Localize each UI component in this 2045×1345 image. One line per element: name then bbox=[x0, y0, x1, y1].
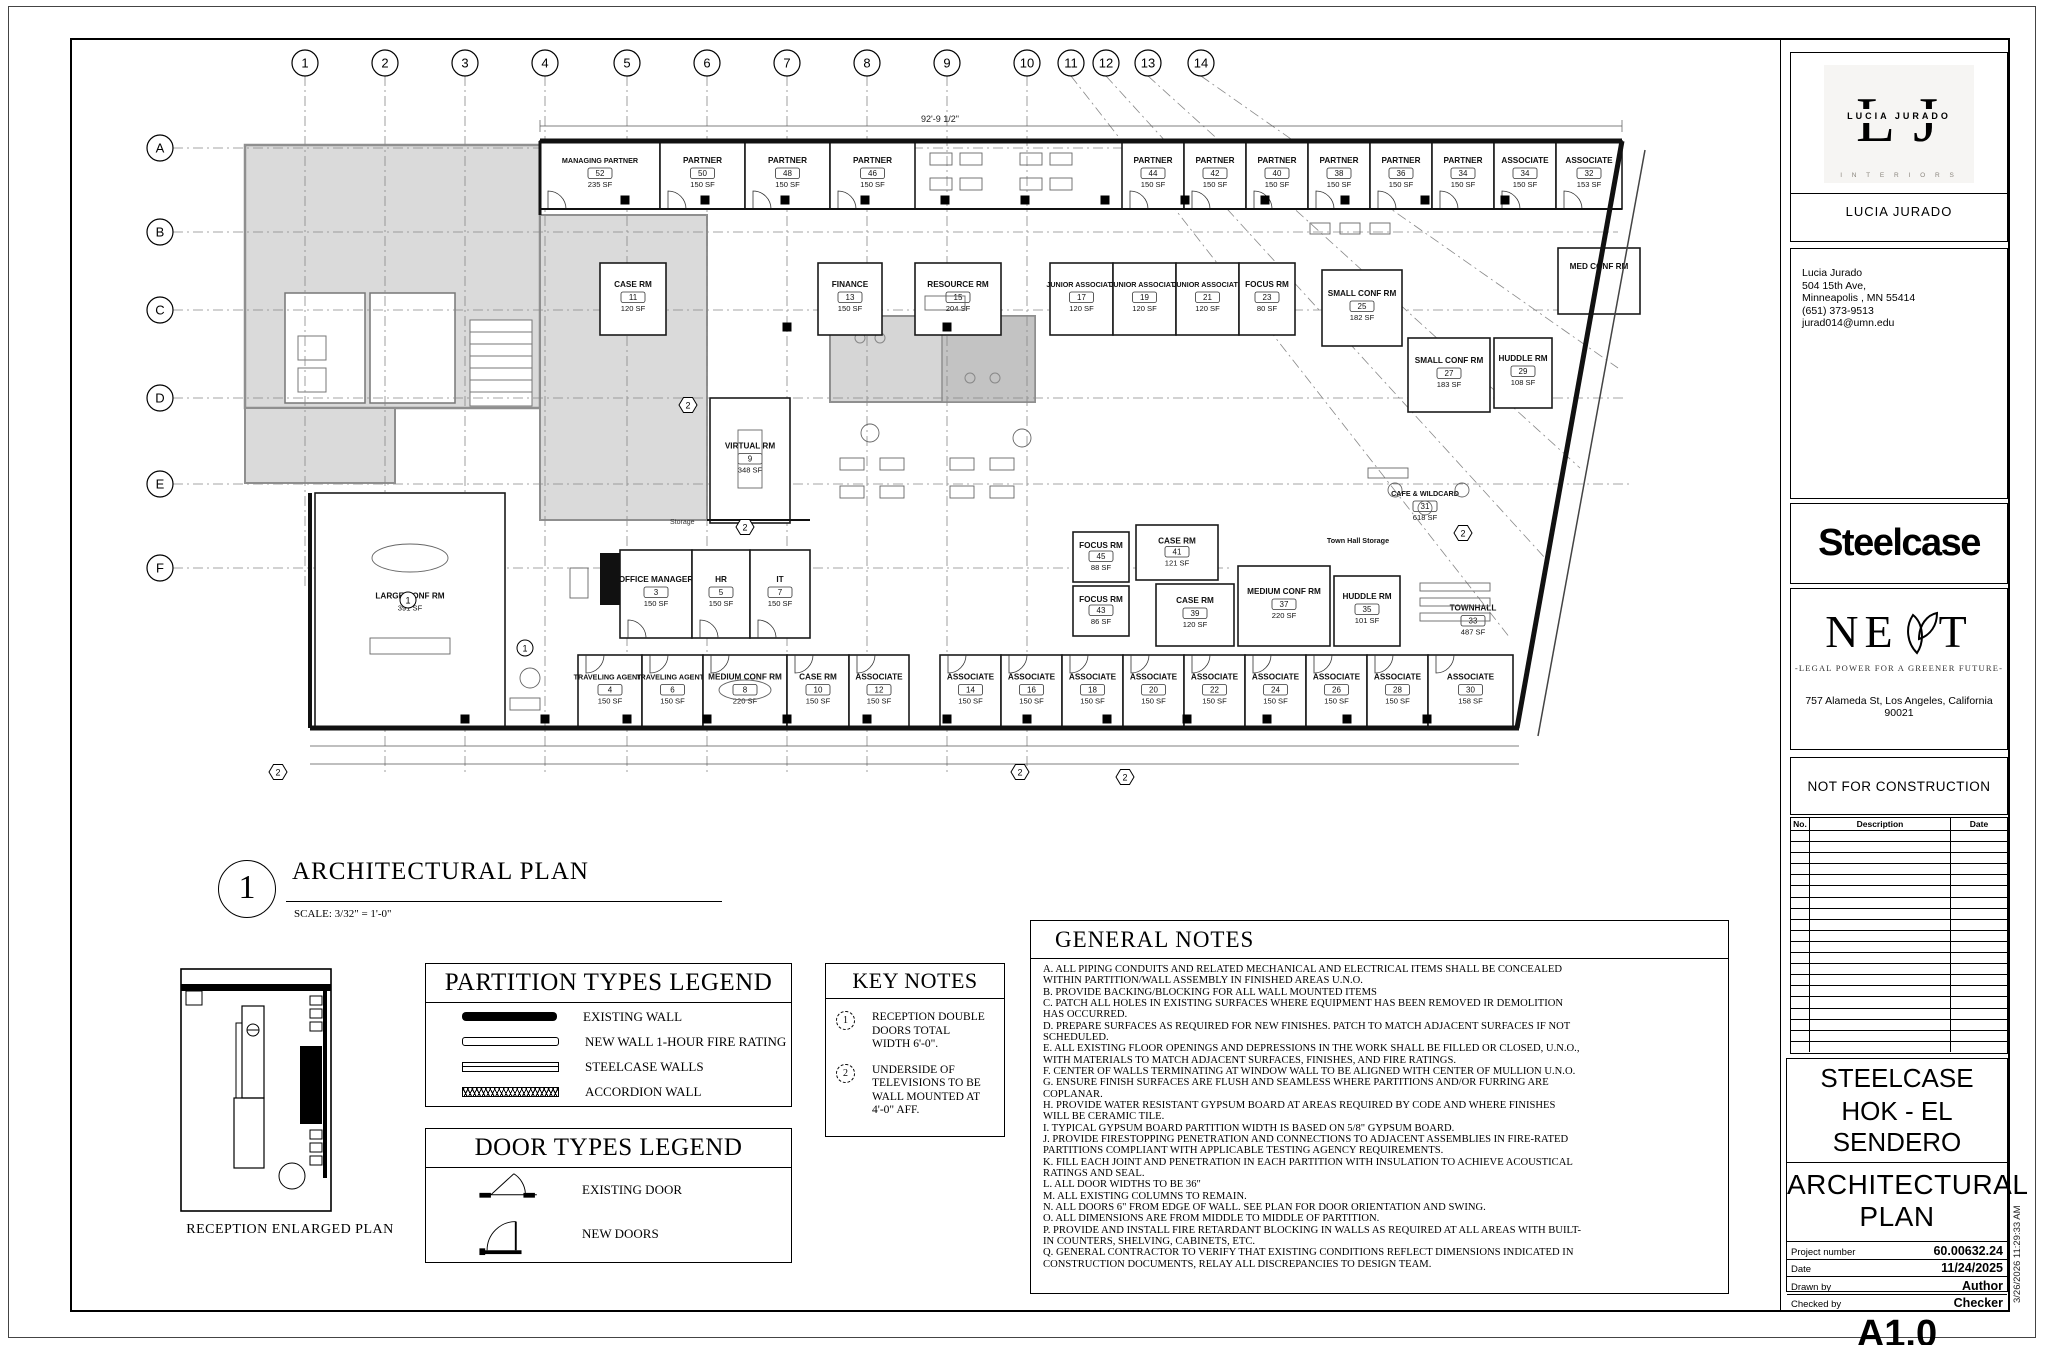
structural-column bbox=[781, 196, 790, 205]
room-label: TRAVELING AGENTS6150 SF bbox=[636, 655, 709, 728]
door-legend-label: NEW DOORS bbox=[582, 1226, 659, 1242]
field-label: Date bbox=[1791, 1264, 1811, 1275]
svg-text:48: 48 bbox=[783, 169, 792, 178]
svg-text:34: 34 bbox=[1521, 169, 1530, 178]
title-block-field: Checked byChecker bbox=[1787, 1295, 2007, 1313]
svg-text:14: 14 bbox=[966, 686, 975, 695]
structural-column bbox=[943, 715, 952, 724]
door-legend-title: DOOR TYPES LEGEND bbox=[426, 1129, 791, 1168]
room-label: PARTNER40150 SF bbox=[1246, 141, 1308, 209]
revision-table-row bbox=[1791, 953, 2007, 964]
door-legend-label: EXISTING DOOR bbox=[582, 1182, 682, 1198]
room-label: PARTNER46150 SF bbox=[830, 141, 915, 209]
svg-text:E: E bbox=[156, 477, 165, 492]
svg-text:TRAVELING AGENTS: TRAVELING AGENTS bbox=[636, 673, 709, 682]
partition-legend-item: STEELCASE WALLS bbox=[426, 1055, 791, 1078]
title-block-field: Project number60.00632.24 bbox=[1787, 1242, 2007, 1260]
structural-column bbox=[621, 196, 630, 205]
room-label: SMALL CONF RM25182 SF bbox=[1322, 270, 1402, 346]
key-note-marker: 2 bbox=[1011, 765, 1029, 780]
svg-text:150 SF: 150 SF bbox=[768, 599, 793, 608]
title-block-field: Drawn byAuthor bbox=[1787, 1277, 2007, 1295]
room-label: RESOURCE RM15204 SF bbox=[915, 263, 1001, 335]
sheet-title: ARCHITECTURAL PLAN bbox=[1787, 1163, 2007, 1242]
svg-text:120 SF: 120 SF bbox=[1183, 620, 1208, 629]
svg-text:PARTNER: PARTNER bbox=[1444, 156, 1483, 165]
svg-text:15: 15 bbox=[954, 293, 963, 302]
room-label: FOCUS RM2380 SF bbox=[1239, 263, 1295, 335]
svg-text:88 SF: 88 SF bbox=[1091, 563, 1112, 572]
svg-text:150 SF: 150 SF bbox=[958, 697, 983, 706]
reception-enlarged-plan bbox=[180, 968, 332, 1212]
room-label: CASE RM11120 SF bbox=[600, 263, 666, 335]
room-label: ASSOCIATE12150 SF bbox=[849, 655, 909, 728]
general-note: A. ALL PIPING CONDUITS AND RELATED MECHA… bbox=[1043, 964, 1583, 987]
room-label: PARTNER42150 SF bbox=[1184, 141, 1246, 209]
firm-contact-box: Lucia Jurado504 15th Ave,Minneapolis , M… bbox=[1790, 248, 2008, 499]
svg-text:B: B bbox=[156, 225, 165, 240]
svg-text:32: 32 bbox=[1585, 169, 1594, 178]
svg-text:20: 20 bbox=[1149, 686, 1158, 695]
svg-text:2: 2 bbox=[1460, 529, 1465, 539]
svg-text:JUNIOR ASSOCIATE: JUNIOR ASSOCIATE bbox=[1172, 280, 1242, 289]
key-notes-panel: KEY NOTES 1RECEPTION DOUBLE DOORS TOTAL … bbox=[825, 963, 1005, 1137]
room-label: OFFICE MANAGER3150 SF bbox=[619, 550, 694, 638]
room-label: ASSOCIATE24150 SF bbox=[1245, 655, 1306, 728]
svg-text:150 SF: 150 SF bbox=[1019, 697, 1044, 706]
svg-text:28: 28 bbox=[1393, 686, 1402, 695]
svg-text:HUDDLE RM: HUDDLE RM bbox=[1498, 354, 1547, 363]
revision-table-row bbox=[1791, 920, 2007, 931]
revision-table-row bbox=[1791, 931, 2007, 942]
general-note: M. ALL EXISTING COLUMNS TO REMAIN. bbox=[1043, 1191, 1583, 1202]
svg-text:158 SF: 158 SF bbox=[1458, 697, 1483, 706]
svg-text:PARTNER: PARTNER bbox=[1320, 156, 1359, 165]
view-number-bubble: 1 bbox=[218, 860, 276, 918]
svg-text:150 SF: 150 SF bbox=[1385, 697, 1410, 706]
svg-text:19: 19 bbox=[1140, 293, 1149, 302]
steelcase-wordmark: Steelcase bbox=[1818, 522, 1980, 565]
drawing-sheet: 1234567891011121314ABCDEF MANAGING PARTN… bbox=[0, 0, 2045, 1345]
structural-column bbox=[701, 196, 710, 205]
svg-text:150 SF: 150 SF bbox=[1202, 697, 1227, 706]
svg-text:10: 10 bbox=[1020, 56, 1034, 71]
field-value: 60.00632.24 bbox=[1933, 1244, 2003, 1258]
svg-text:8: 8 bbox=[863, 56, 870, 71]
svg-text:CASE RM: CASE RM bbox=[799, 673, 837, 682]
svg-text:11: 11 bbox=[1064, 56, 1078, 71]
room-label: Town Hall Storage bbox=[1327, 536, 1389, 545]
structural-column bbox=[1263, 715, 1272, 724]
svg-text:PARTNER: PARTNER bbox=[683, 156, 722, 165]
svg-text:31: 31 bbox=[1421, 502, 1430, 511]
svg-text:150 SF: 150 SF bbox=[1263, 697, 1288, 706]
room-label: MANAGING PARTNER52235 SF bbox=[540, 141, 660, 209]
svg-text:40: 40 bbox=[1273, 169, 1282, 178]
svg-text:16: 16 bbox=[1027, 686, 1036, 695]
svg-text:108 SF: 108 SF bbox=[1511, 378, 1536, 387]
reception-plan-label: RECEPTION ENLARGED PLAN bbox=[130, 1222, 450, 1238]
structural-column bbox=[1501, 196, 1510, 205]
general-note: G. ENSURE FINISH SURFACES ARE FLUSH AND … bbox=[1043, 1077, 1583, 1100]
svg-text:101 SF: 101 SF bbox=[1355, 616, 1380, 625]
structural-column bbox=[1183, 715, 1192, 724]
svg-text:CASE RM: CASE RM bbox=[1158, 537, 1196, 546]
room-label: PARTNER34150 SF bbox=[1432, 141, 1494, 209]
key-note-number: 1 bbox=[836, 1011, 855, 1030]
existing-door-icon bbox=[476, 1168, 546, 1212]
top-dimension-label: 92'-9 1/2" bbox=[921, 114, 959, 124]
field-value: Author bbox=[1962, 1279, 2003, 1293]
partition-legend-label: NEW WALL 1-HOUR FIRE RATING bbox=[585, 1034, 786, 1050]
svg-text:4: 4 bbox=[541, 56, 548, 71]
firm-logo-box: LJ LUCIA JURADO I N T E R I O R S LUCIA … bbox=[1790, 52, 2008, 242]
general-note: O. ALL DIMENSIONS ARE FROM MIDDLE TO MID… bbox=[1043, 1213, 1583, 1224]
key-note-number: 2 bbox=[836, 1064, 855, 1083]
svg-text:8: 8 bbox=[743, 686, 748, 695]
client-logo-box: Steelcase bbox=[1790, 503, 2008, 584]
svg-text:1: 1 bbox=[405, 596, 410, 606]
svg-text:204 SF: 204 SF bbox=[946, 304, 971, 313]
room-label: CASE RM41121 SF bbox=[1136, 525, 1218, 580]
svg-text:SMALL CONF RM: SMALL CONF RM bbox=[1328, 289, 1397, 298]
structural-column bbox=[1181, 196, 1190, 205]
room-label: FINANCE13150 SF bbox=[818, 263, 882, 335]
general-note: B. PROVIDE BACKING/BLOCKING FOR ALL WALL… bbox=[1043, 987, 1583, 998]
svg-text:150 SF: 150 SF bbox=[1513, 180, 1538, 189]
general-notes-text: A. ALL PIPING CONDUITS AND RELATED MECHA… bbox=[1031, 959, 1597, 1270]
svg-text:SMALL CONF RM: SMALL CONF RM bbox=[1415, 356, 1484, 365]
svg-text:150 SF: 150 SF bbox=[1265, 180, 1290, 189]
partition-swatch-steelcase bbox=[462, 1062, 559, 1072]
door-legend-item: NEW DOORS bbox=[426, 1212, 791, 1256]
svg-text:3: 3 bbox=[654, 588, 659, 597]
svg-text:2: 2 bbox=[1017, 768, 1022, 778]
svg-text:FOCUS RM: FOCUS RM bbox=[1079, 595, 1123, 604]
key-note-marker: 2 bbox=[736, 520, 754, 535]
general-note: N. ALL DOORS 6" FROM EDGE OF WALL. SEE P… bbox=[1043, 1202, 1583, 1213]
revision-table-row bbox=[1791, 1031, 2007, 1042]
reception-desk bbox=[600, 553, 620, 605]
svg-text:150 SF: 150 SF bbox=[1389, 180, 1414, 189]
key-note-text: UNDERSIDE OF TELEVISIONS TO BE WALL MOUN… bbox=[872, 1064, 990, 1118]
structural-column bbox=[1021, 196, 1030, 205]
svg-text:VIRTUAL RM: VIRTUAL RM bbox=[725, 442, 776, 451]
room-label: TOWNHALL33487 SF bbox=[1450, 604, 1497, 637]
svg-text:6: 6 bbox=[670, 686, 675, 695]
svg-text:348 SF: 348 SF bbox=[738, 466, 763, 475]
svg-text:44: 44 bbox=[1149, 169, 1158, 178]
svg-text:120 SF: 120 SF bbox=[1195, 304, 1220, 313]
svg-text:PARTNER: PARTNER bbox=[1382, 156, 1421, 165]
general-note: H. PROVIDE WATER RESISTANT GYPSUM BOARD … bbox=[1043, 1100, 1583, 1123]
svg-text:24: 24 bbox=[1271, 686, 1280, 695]
key-note-text: RECEPTION DOUBLE DOORS TOTAL WIDTH 6'-0"… bbox=[872, 1011, 990, 1052]
key-note-marker: 2 bbox=[1116, 770, 1134, 785]
room-label: ASSOCIATE28150 SF bbox=[1367, 655, 1428, 728]
svg-text:41: 41 bbox=[1173, 548, 1182, 557]
svg-text:D: D bbox=[155, 391, 164, 406]
svg-text:220 SF: 220 SF bbox=[733, 697, 758, 706]
firm-contact-line: Lucia Jurado bbox=[1802, 267, 2007, 280]
key-notes-title: KEY NOTES bbox=[826, 964, 1004, 999]
room-label: JUNIOR ASSOCIATE17120 SF bbox=[1046, 263, 1116, 335]
svg-text:1: 1 bbox=[301, 56, 308, 71]
svg-text:50: 50 bbox=[698, 169, 707, 178]
general-note: P. PROVIDE AND INSTALL FIRE RETARDANT BL… bbox=[1043, 1225, 1583, 1248]
svg-text:18: 18 bbox=[1088, 686, 1097, 695]
firm-contact-line: 504 15th Ave, bbox=[1802, 280, 2007, 293]
svg-text:150 SF: 150 SF bbox=[1141, 180, 1166, 189]
svg-text:120 SF: 120 SF bbox=[1069, 304, 1094, 313]
firm-contact-line: jurad014@umn.edu bbox=[1802, 317, 2007, 330]
svg-text:5: 5 bbox=[623, 56, 630, 71]
svg-text:2: 2 bbox=[381, 56, 388, 71]
svg-text:PARTNER: PARTNER bbox=[1258, 156, 1297, 165]
svg-text:150 SF: 150 SF bbox=[660, 697, 685, 706]
structural-column bbox=[1341, 196, 1350, 205]
revision-table-row bbox=[1791, 898, 2007, 909]
svg-text:HUDDLE RM: HUDDLE RM bbox=[1342, 592, 1391, 601]
general-note: D. PREPARE SURFACES AS REQUIRED FOR NEW … bbox=[1043, 1021, 1583, 1044]
revision-table-row bbox=[1791, 1020, 2007, 1031]
structural-column bbox=[783, 715, 792, 724]
svg-text:12: 12 bbox=[1099, 56, 1113, 71]
svg-text:150 SF: 150 SF bbox=[1141, 697, 1166, 706]
construction-status: NOT FOR CONSTRUCTION bbox=[1790, 757, 2008, 815]
svg-text:80 SF: 80 SF bbox=[1257, 304, 1278, 313]
field-label: Checked by bbox=[1791, 1299, 1841, 1310]
svg-text:ASSOCIATE: ASSOCIATE bbox=[1374, 673, 1422, 682]
svg-text:ASSOCIATE: ASSOCIATE bbox=[1565, 156, 1613, 165]
room-label: ASSOCIATE20150 SF bbox=[1123, 655, 1184, 728]
svg-text:TOWNHALL: TOWNHALL bbox=[1450, 604, 1497, 613]
svg-text:RESOURCE RM: RESOURCE RM bbox=[927, 280, 989, 289]
field-value: 11/24/2025 bbox=[1941, 1261, 2003, 1275]
room-label: MEDIUM CONF RM37220 SF bbox=[1238, 566, 1330, 646]
svg-text:10: 10 bbox=[814, 686, 823, 695]
project-name-line2: HOK - EL SENDERO bbox=[1787, 1096, 2007, 1163]
svg-text:39: 39 bbox=[1191, 609, 1200, 618]
svg-text:220 SF: 220 SF bbox=[1272, 611, 1297, 620]
room-label: ASSOCIATE30158 SF bbox=[1428, 655, 1513, 728]
svg-text:30: 30 bbox=[1466, 686, 1475, 695]
svg-text:46: 46 bbox=[868, 169, 877, 178]
partition-swatch-new1hr bbox=[462, 1037, 559, 1046]
door-legend-item: EXISTING DOOR bbox=[426, 1168, 791, 1212]
svg-text:3: 3 bbox=[461, 56, 468, 71]
room-label: SMALL CONF RM27183 SF bbox=[1408, 338, 1490, 412]
svg-text:35: 35 bbox=[1363, 605, 1372, 614]
svg-text:150 SF: 150 SF bbox=[806, 697, 831, 706]
svg-text:ASSOCIATE: ASSOCIATE bbox=[1130, 673, 1178, 682]
partition-types-legend: PARTITION TYPES LEGEND EXISTING WALLNEW … bbox=[425, 963, 792, 1107]
room-label: MEDIUM CONF RM8220 SF bbox=[703, 655, 787, 728]
svg-text:21: 21 bbox=[1203, 293, 1212, 302]
svg-text:ASSOCIATE: ASSOCIATE bbox=[947, 673, 995, 682]
firm-contact-line: Minneapolis , MN 55414 bbox=[1802, 292, 2007, 305]
svg-text:150 SF: 150 SF bbox=[1203, 180, 1228, 189]
svg-text:PARTNER: PARTNER bbox=[1134, 156, 1173, 165]
svg-text:150 SF: 150 SF bbox=[867, 697, 892, 706]
door-types-legend: DOOR TYPES LEGEND EXISTING DOORNEW DOORS bbox=[425, 1128, 792, 1263]
key-note-marker: 2 bbox=[1454, 526, 1472, 541]
key-note-marker: 2 bbox=[269, 765, 287, 780]
svg-text:C: C bbox=[155, 303, 164, 318]
svg-text:JUNIOR ASSOCIATE: JUNIOR ASSOCIATE bbox=[1046, 280, 1116, 289]
svg-text:153 SF: 153 SF bbox=[1577, 180, 1602, 189]
svg-text:6: 6 bbox=[703, 56, 710, 71]
view-title: ARCHITECTURAL PLAN bbox=[292, 858, 589, 886]
svg-text:43: 43 bbox=[1097, 606, 1106, 615]
svg-text:22: 22 bbox=[1210, 686, 1219, 695]
structural-column bbox=[623, 715, 632, 724]
svg-text:52: 52 bbox=[596, 169, 605, 178]
svg-text:150 SF: 150 SF bbox=[1080, 697, 1105, 706]
svg-text:86 SF: 86 SF bbox=[1091, 617, 1112, 626]
svg-text:150 SF: 150 SF bbox=[775, 180, 800, 189]
partition-swatch-existing bbox=[462, 1012, 557, 1021]
structural-column bbox=[1261, 196, 1270, 205]
room-label: CASE RM39120 SF bbox=[1156, 584, 1234, 646]
room-label: FOCUS RM4588 SF bbox=[1073, 532, 1129, 582]
revision-table-row bbox=[1791, 942, 2007, 953]
svg-text:150 SF: 150 SF bbox=[644, 599, 669, 608]
room-label: LARGE CONF RM391 SF bbox=[315, 493, 505, 728]
revision-table-header: No.DescriptionDate bbox=[1791, 818, 2007, 831]
svg-text:150 SF: 150 SF bbox=[1324, 697, 1349, 706]
svg-text:150 SF: 150 SF bbox=[838, 304, 863, 313]
partition-legend-label: ACCORDION WALL bbox=[585, 1084, 701, 1100]
view-title-rule bbox=[286, 901, 722, 902]
structural-column bbox=[943, 323, 952, 332]
room-label: HUDDLE RM35101 SF bbox=[1334, 576, 1400, 646]
svg-text:150 SF: 150 SF bbox=[598, 697, 623, 706]
revision-table-row bbox=[1791, 875, 2007, 886]
revision-table-row bbox=[1791, 1009, 2007, 1020]
room-label: ASSOCIATE18150 SF bbox=[1062, 655, 1123, 728]
svg-text:FINANCE: FINANCE bbox=[832, 280, 869, 289]
room-label: TRAVELING AGENTS4150 SF bbox=[574, 655, 647, 728]
room-label: HUDDLE RM29108 SF bbox=[1494, 338, 1552, 408]
svg-text:CASE RM: CASE RM bbox=[1176, 596, 1214, 605]
structural-column bbox=[703, 715, 712, 724]
revision-table-row bbox=[1791, 986, 2007, 997]
general-note: E. ALL EXISTING FLOOR OPENINGS AND DEPRE… bbox=[1043, 1043, 1583, 1066]
room-label: ASSOCIATE22150 SF bbox=[1184, 655, 1245, 728]
svg-text:12: 12 bbox=[875, 686, 884, 695]
svg-text:11: 11 bbox=[629, 293, 638, 302]
svg-text:42: 42 bbox=[1211, 169, 1220, 178]
structural-column bbox=[1101, 196, 1110, 205]
svg-text:JUNIOR ASSOCIATE: JUNIOR ASSOCIATE bbox=[1109, 280, 1179, 289]
key-note-marker: 2 bbox=[679, 398, 697, 413]
key-note-marker: 1 bbox=[400, 592, 416, 608]
key-note-item: 2UNDERSIDE OF TELEVISIONS TO BE WALL MOU… bbox=[836, 1064, 1004, 1118]
svg-text:ASSOCIATE: ASSOCIATE bbox=[1191, 673, 1239, 682]
general-note: F. CENTER OF WALLS TERMINATING AT WINDOW… bbox=[1043, 1066, 1583, 1077]
svg-text:ASSOCIATE: ASSOCIATE bbox=[1501, 156, 1549, 165]
svg-text:120 SF: 120 SF bbox=[1132, 304, 1157, 313]
project-logo-box: NE T -LEGAL POWER FOR A GREENER FUTURE- … bbox=[1790, 588, 2008, 750]
floor-plan-drawing: 1234567891011121314ABCDEF MANAGING PARTN… bbox=[70, 38, 1780, 900]
partition-swatch-accordion bbox=[462, 1087, 559, 1097]
svg-text:182 SF: 182 SF bbox=[1350, 313, 1375, 322]
structural-column bbox=[1423, 715, 1432, 724]
svg-text:F: F bbox=[156, 561, 164, 576]
svg-text:2: 2 bbox=[275, 768, 280, 778]
revision-table-row bbox=[1791, 975, 2007, 986]
svg-text:487 SF: 487 SF bbox=[1461, 628, 1486, 637]
svg-text:ASSOCIATE: ASSOCIATE bbox=[855, 673, 903, 682]
svg-text:ASSOCIATE: ASSOCIATE bbox=[1447, 673, 1495, 682]
key-note-item: 1RECEPTION DOUBLE DOORS TOTAL WIDTH 6'-0… bbox=[836, 1011, 1004, 1052]
room-label: PARTNER38150 SF bbox=[1308, 141, 1370, 209]
revision-table-row bbox=[1791, 964, 2007, 975]
svg-text:38: 38 bbox=[1335, 169, 1344, 178]
svg-text:150 SF: 150 SF bbox=[690, 180, 715, 189]
revision-table-row bbox=[1791, 831, 2007, 842]
partition-legend-label: STEELCASE WALLS bbox=[585, 1059, 704, 1075]
general-note: J. PROVIDE FIRESTOPPING PENETRATION AND … bbox=[1043, 1134, 1583, 1157]
svg-text:ASSOCIATE: ASSOCIATE bbox=[1008, 673, 1056, 682]
svg-text:ASSOCIATE: ASSOCIATE bbox=[1069, 673, 1117, 682]
revision-table-row bbox=[1791, 842, 2007, 853]
structural-column bbox=[1421, 196, 1430, 205]
svg-text:120 SF: 120 SF bbox=[621, 304, 646, 313]
room-label: JUNIOR ASSOCIATE19120 SF bbox=[1109, 263, 1179, 335]
structural-column bbox=[1343, 715, 1352, 724]
svg-text:150 SF: 150 SF bbox=[860, 180, 885, 189]
svg-text:5: 5 bbox=[719, 588, 724, 597]
svg-text:1: 1 bbox=[522, 644, 527, 654]
svg-text:150 SF: 150 SF bbox=[1327, 180, 1352, 189]
structural-column bbox=[461, 715, 470, 724]
new-door-icon bbox=[476, 1212, 546, 1256]
svg-text:ASSOCIATE: ASSOCIATE bbox=[1313, 673, 1361, 682]
structural-column bbox=[1023, 715, 1032, 724]
svg-text:MANAGING PARTNER: MANAGING PARTNER bbox=[562, 156, 639, 165]
room-label: IT7150 SF bbox=[750, 550, 810, 638]
svg-text:2: 2 bbox=[1122, 773, 1127, 783]
svg-text:PARTNER: PARTNER bbox=[1196, 156, 1235, 165]
revision-table-row bbox=[1791, 1042, 2007, 1052]
revision-table-row bbox=[1791, 997, 2007, 1008]
room-label: HR5150 SF bbox=[692, 550, 750, 638]
title-block-info: STEELCASE HOK - EL SENDERO ARCHITECTURAL… bbox=[1786, 1058, 2008, 1292]
general-note: L. ALL DOOR WIDTHS TO BE 36" bbox=[1043, 1179, 1583, 1190]
title-block-field: Date11/24/2025 bbox=[1787, 1260, 2007, 1278]
view-scale: SCALE: 3/32" = 1'-0" bbox=[294, 908, 392, 920]
general-note: Q. GENERAL CONTRACTOR TO VERIFY THAT EXI… bbox=[1043, 1247, 1583, 1270]
partition-legend-title: PARTITION TYPES LEGEND bbox=[426, 964, 791, 1003]
svg-text:Town Hall Storage: Town Hall Storage bbox=[1327, 536, 1389, 545]
room-label: ASSOCIATE26150 SF bbox=[1306, 655, 1367, 728]
revision-table-row bbox=[1791, 909, 2007, 920]
svg-text:PARTNER: PARTNER bbox=[768, 156, 807, 165]
partition-legend-label: EXISTING WALL bbox=[583, 1009, 682, 1025]
general-notes-panel: GENERAL NOTES A. ALL PIPING CONDUITS AND… bbox=[1030, 920, 1729, 1294]
sheet-number: A1.0 bbox=[1787, 1312, 2007, 1345]
svg-text:4: 4 bbox=[608, 686, 613, 695]
svg-text:235 SF: 235 SF bbox=[588, 180, 613, 189]
svg-text:25: 25 bbox=[1358, 302, 1367, 311]
svg-text:13: 13 bbox=[1141, 56, 1155, 71]
structural-column bbox=[861, 196, 870, 205]
svg-text:17: 17 bbox=[1077, 293, 1086, 302]
print-timestamp: 3/26/2026 11:29:33 AM bbox=[2012, 1128, 2023, 1303]
revision-table-row bbox=[1791, 864, 2007, 875]
